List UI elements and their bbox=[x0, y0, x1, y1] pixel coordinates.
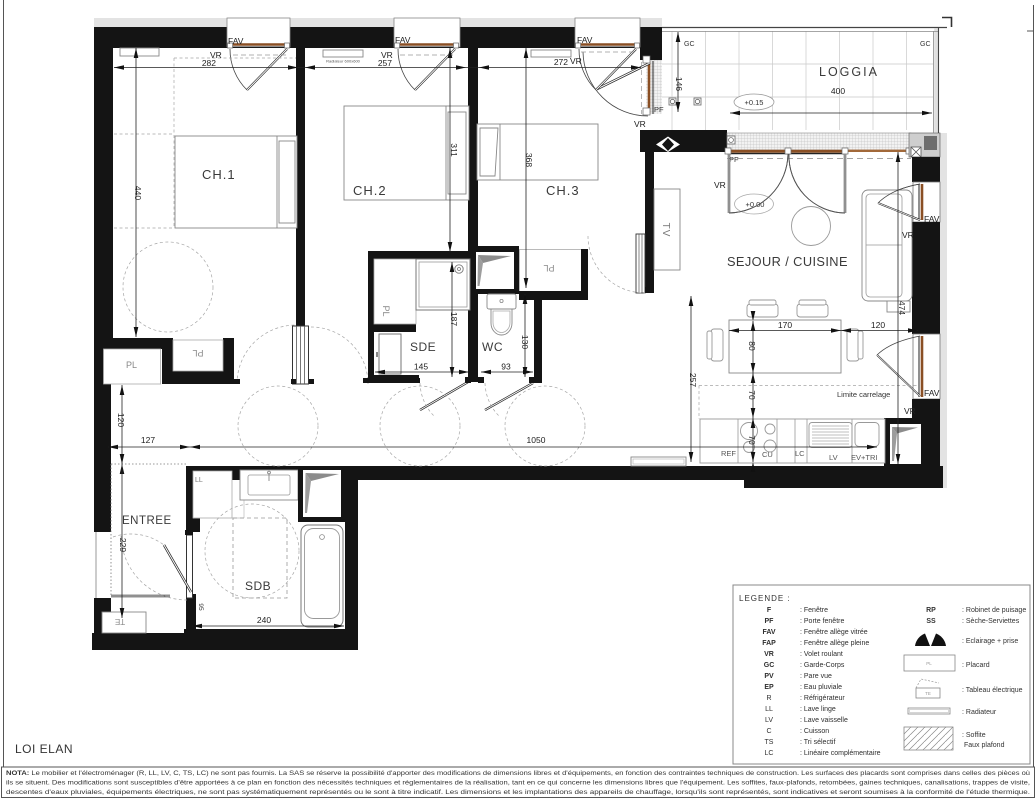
svg-text:LC: LC bbox=[795, 449, 805, 458]
svg-text:PL: PL bbox=[192, 348, 203, 358]
svg-text:440: 440 bbox=[133, 186, 143, 200]
svg-text:: Garde-Corps: : Garde-Corps bbox=[800, 662, 845, 669]
svg-text:TE: TE bbox=[925, 691, 931, 696]
svg-text:70: 70 bbox=[747, 390, 757, 400]
svg-text:WC: WC bbox=[482, 340, 503, 354]
svg-text:PV: PV bbox=[764, 673, 774, 680]
svg-text:GC: GC bbox=[764, 662, 775, 669]
svg-text:RP: RP bbox=[926, 607, 936, 614]
svg-text:FAV: FAV bbox=[762, 629, 775, 636]
svg-text:: Linéaire complémentaire: : Linéaire complémentaire bbox=[800, 750, 881, 757]
svg-text:FAV: FAV bbox=[924, 388, 940, 398]
svg-text:LV: LV bbox=[829, 453, 838, 462]
svg-text:PF: PF bbox=[654, 105, 664, 114]
svg-text:311: 311 bbox=[449, 143, 459, 157]
svg-text:: Réfrigérateur: : Réfrigérateur bbox=[800, 695, 845, 702]
svg-text:LOI ELAN: LOI ELAN bbox=[15, 742, 73, 756]
svg-text:95: 95 bbox=[197, 603, 204, 611]
svg-text:SEJOUR / CUISINE: SEJOUR / CUISINE bbox=[727, 254, 848, 269]
svg-text:ils se situent. Des modificati: ils se situent. Des modifications sont s… bbox=[6, 779, 1030, 786]
svg-text:Radiateur 600x600: Radiateur 600x600 bbox=[326, 59, 361, 64]
svg-text:1050: 1050 bbox=[527, 435, 546, 445]
svg-text:TV: TV bbox=[660, 223, 671, 238]
svg-text:130: 130 bbox=[520, 335, 530, 349]
svg-text:LEGENDE :: LEGENDE : bbox=[739, 594, 791, 603]
svg-text:R: R bbox=[766, 695, 771, 702]
svg-text:474: 474 bbox=[897, 301, 907, 315]
svg-text:LL: LL bbox=[765, 706, 773, 713]
svg-text:PL: PL bbox=[543, 263, 554, 273]
svg-text:: Soffite: : Soffite bbox=[962, 732, 986, 739]
svg-text:CH.3: CH.3 bbox=[546, 183, 580, 198]
svg-text:PF: PF bbox=[765, 618, 775, 625]
svg-text:: Lave linge: : Lave linge bbox=[800, 706, 836, 713]
svg-text:+0.15: +0.15 bbox=[745, 98, 764, 107]
svg-text:: Tableau électrique: : Tableau électrique bbox=[962, 687, 1023, 694]
svg-text:LOGGIA: LOGGIA bbox=[819, 65, 879, 79]
svg-text:ENTREE: ENTREE bbox=[122, 515, 172, 527]
svg-text:FAV: FAV bbox=[395, 35, 411, 45]
svg-text:CH.1: CH.1 bbox=[202, 167, 236, 182]
svg-text:VR: VR bbox=[714, 180, 726, 190]
svg-text:VR: VR bbox=[381, 50, 393, 60]
svg-text:NOTA: Le mobilier et l'électr: NOTA: Le mobilier et l'électroménager (R… bbox=[6, 770, 1030, 777]
svg-text:93: 93 bbox=[501, 362, 511, 372]
svg-text:VR: VR bbox=[902, 230, 914, 240]
svg-text:: Sèche-Serviettes: : Sèche-Serviettes bbox=[962, 618, 1020, 625]
svg-text:80: 80 bbox=[747, 341, 757, 351]
svg-text:Limite carrelage: Limite carrelage bbox=[837, 390, 890, 399]
svg-text:GC: GC bbox=[920, 41, 931, 48]
svg-text:Faux plafond: Faux plafond bbox=[964, 742, 1005, 749]
svg-text:368: 368 bbox=[524, 153, 534, 167]
svg-text:C: C bbox=[766, 728, 771, 735]
svg-text:240: 240 bbox=[257, 615, 271, 625]
svg-text:187: 187 bbox=[449, 312, 459, 326]
svg-text:SDE: SDE bbox=[410, 340, 436, 354]
svg-text:VR: VR bbox=[210, 50, 222, 60]
svg-text:FAP: FAP bbox=[762, 640, 776, 647]
svg-text:: Pare vue: : Pare vue bbox=[800, 673, 832, 680]
svg-text:EV+TRI: EV+TRI bbox=[851, 453, 877, 462]
svg-text:GC: GC bbox=[684, 41, 695, 48]
svg-text:: Fenêtre allège vitrée: : Fenêtre allège vitrée bbox=[800, 629, 868, 636]
svg-text:REF: REF bbox=[721, 449, 736, 458]
svg-text:: Eclairage + prise: : Eclairage + prise bbox=[962, 638, 1018, 645]
svg-text:VR: VR bbox=[570, 56, 582, 66]
svg-text:: Cuisson: : Cuisson bbox=[800, 728, 829, 735]
svg-text:: Fenêtre: : Fenêtre bbox=[800, 607, 828, 614]
svg-text:127: 127 bbox=[141, 435, 155, 445]
svg-text:F: F bbox=[767, 607, 772, 614]
svg-text:: Eau pluviale: : Eau pluviale bbox=[800, 684, 842, 691]
svg-text:: Robinet de puisage: : Robinet de puisage bbox=[962, 607, 1026, 614]
svg-text:: Radiateur: : Radiateur bbox=[962, 709, 997, 716]
svg-text:VR: VR bbox=[904, 406, 916, 416]
svg-text:FAV: FAV bbox=[228, 36, 244, 46]
svg-text:: Volet roulant: : Volet roulant bbox=[800, 651, 843, 658]
svg-text:VR: VR bbox=[764, 651, 774, 658]
svg-text:PL: PL bbox=[126, 360, 137, 370]
svg-text:: Lave vaisselle: : Lave vaisselle bbox=[800, 717, 848, 724]
svg-text:PL: PL bbox=[926, 661, 932, 666]
svg-text:120: 120 bbox=[116, 413, 126, 427]
svg-text:PF: PF bbox=[729, 155, 739, 164]
svg-text:229: 229 bbox=[118, 538, 128, 552]
svg-text:TE: TE bbox=[115, 617, 125, 626]
svg-text:400: 400 bbox=[831, 86, 845, 96]
svg-text:+0.00: +0.00 bbox=[746, 200, 765, 209]
svg-text:: Tri sélectif: : Tri sélectif bbox=[800, 739, 835, 746]
svg-text:VR: VR bbox=[634, 119, 646, 129]
svg-text:SDB: SDB bbox=[245, 579, 271, 593]
svg-text:FAV: FAV bbox=[924, 214, 940, 224]
svg-text:CH.2: CH.2 bbox=[353, 183, 387, 198]
svg-text:: Placard: : Placard bbox=[962, 662, 990, 669]
svg-text:272: 272 bbox=[554, 57, 568, 67]
svg-text:EP: EP bbox=[764, 684, 774, 691]
svg-text:: Porte fenêtre: : Porte fenêtre bbox=[800, 618, 844, 625]
svg-text:146: 146 bbox=[674, 77, 684, 91]
svg-text:LL: LL bbox=[195, 477, 203, 484]
svg-text:descentes d'eaux pluviales, éq: descentes d'eaux pluviales, équipements … bbox=[6, 789, 1030, 796]
svg-text:120: 120 bbox=[871, 320, 885, 330]
svg-text:LC: LC bbox=[765, 750, 774, 757]
svg-text:257: 257 bbox=[688, 373, 698, 387]
svg-text:170: 170 bbox=[778, 320, 792, 330]
svg-text:TS: TS bbox=[765, 739, 774, 746]
svg-text:145: 145 bbox=[414, 362, 428, 372]
svg-text:PL: PL bbox=[381, 305, 391, 316]
svg-text:FAV: FAV bbox=[577, 35, 593, 45]
svg-text:: Fenêtre allège pleine: : Fenêtre allège pleine bbox=[800, 640, 869, 647]
svg-text:SS: SS bbox=[926, 618, 936, 625]
svg-text:LV: LV bbox=[765, 717, 773, 724]
svg-text:70: 70 bbox=[747, 435, 757, 445]
svg-text:CU: CU bbox=[762, 450, 773, 459]
